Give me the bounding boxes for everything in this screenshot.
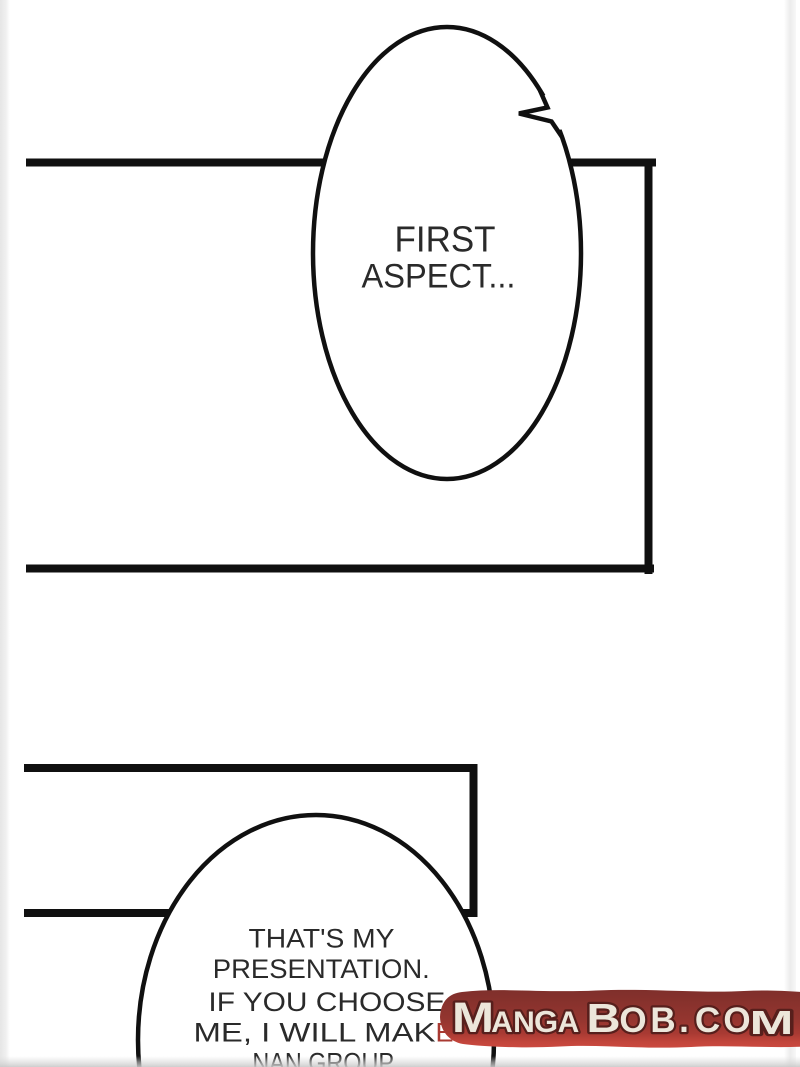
svg-text:FIRST: FIRST xyxy=(395,219,496,260)
svg-text:O: O xyxy=(619,1001,646,1040)
svg-text:A: A xyxy=(558,1006,580,1039)
svg-text:A: A xyxy=(491,1006,513,1039)
svg-text:B: B xyxy=(586,996,620,1041)
svg-text:N: N xyxy=(513,1006,535,1039)
svg-text:C: C xyxy=(695,1001,720,1040)
svg-text:THAT'S MY: THAT'S MY xyxy=(249,924,395,954)
svg-text:ASPECT...: ASPECT... xyxy=(362,258,516,296)
svg-text:M: M xyxy=(750,1005,794,1042)
svg-text:M: M xyxy=(452,993,494,1041)
svg-text:PRESENTATION.: PRESENTATION. xyxy=(213,954,430,984)
svg-text:ME, I WILL MAK: ME, I WILL MAK xyxy=(194,1018,436,1048)
svg-text:O: O xyxy=(723,1001,750,1040)
svg-text:B: B xyxy=(650,1001,675,1040)
svg-text:.: . xyxy=(679,1001,689,1040)
svg-text:G: G xyxy=(534,1004,558,1039)
svg-text:IF YOU CHOOSE: IF YOU CHOOSE xyxy=(208,987,445,1017)
